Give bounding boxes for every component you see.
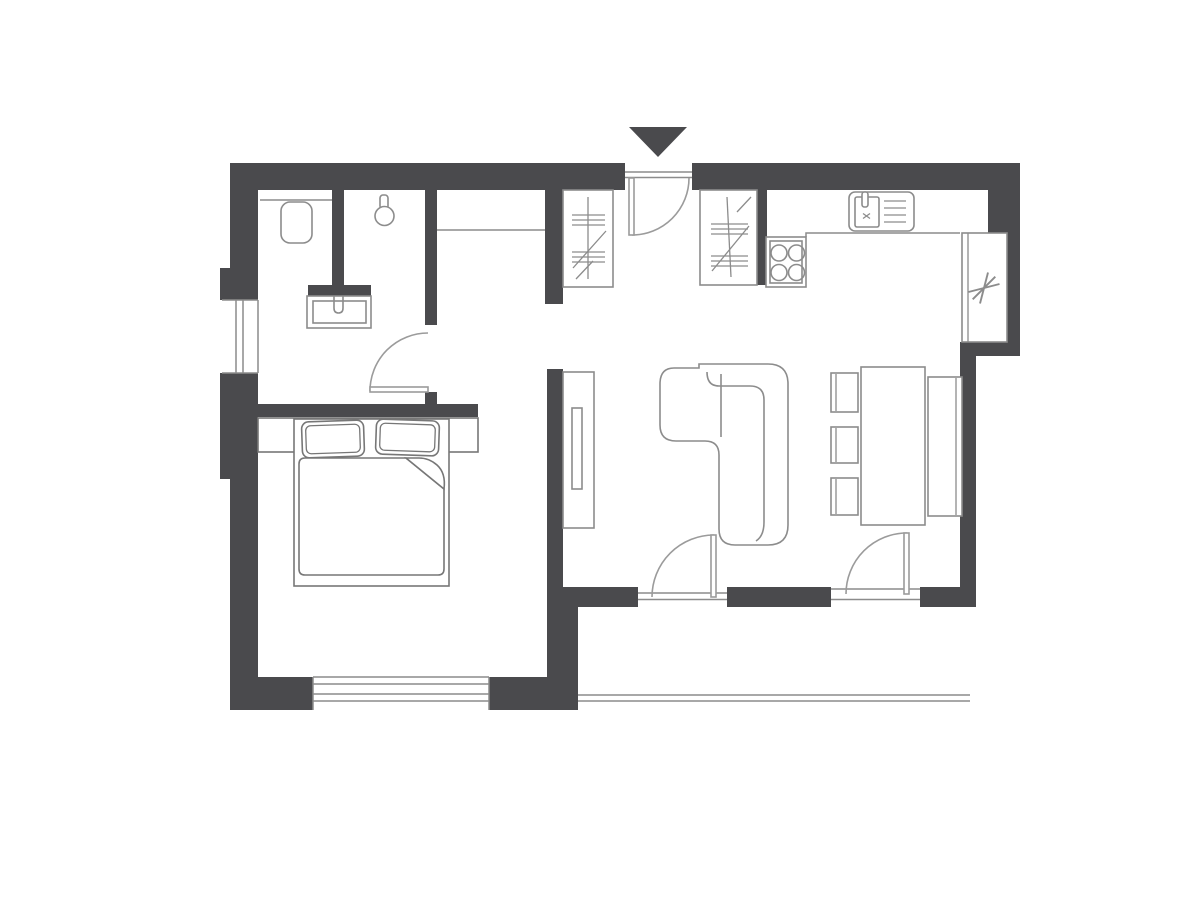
chair	[831, 478, 858, 515]
wall-west-pilaster-upper	[220, 268, 258, 300]
wall-hall-living-lower	[547, 369, 563, 607]
wall-bathroom-partition	[332, 188, 344, 285]
wall-south-bedroom-left	[230, 677, 313, 710]
wall-top-right	[692, 163, 1020, 190]
bathroom-west-window	[222, 300, 258, 373]
entrance-threshold	[625, 172, 692, 178]
balcony-door-right-leaf	[904, 533, 909, 594]
sink-faucet	[862, 192, 868, 207]
dining-table	[861, 367, 925, 525]
pillow	[375, 419, 439, 456]
corner-sofa	[660, 364, 788, 545]
balcony-door-left-swing-arc	[652, 535, 714, 597]
floor-plan	[0, 0, 1200, 900]
wall-top-left	[230, 163, 625, 190]
bedroom-furniture	[258, 418, 478, 586]
floor-plan-canvas	[0, 0, 1200, 900]
bench	[928, 377, 962, 516]
entrance-door-swing-arc	[632, 178, 689, 235]
pillow	[301, 420, 364, 458]
wall-south-living-right	[920, 587, 976, 607]
living-furniture	[563, 364, 962, 545]
kitchen-sink-unit	[849, 192, 914, 231]
wall-hall-closet-upper	[545, 185, 563, 304]
toilet	[281, 202, 312, 243]
entrance-door-leaf	[629, 178, 634, 235]
tv	[572, 408, 582, 489]
doors	[370, 178, 909, 597]
wall-bathroom-east-stub	[425, 392, 437, 405]
entrance-marker-icon	[629, 127, 687, 157]
wall-bathroom-east	[425, 188, 437, 325]
bathroom-door-swing-arc	[370, 333, 428, 391]
window-glazing-line	[313, 684, 489, 701]
balcony-door-right-swing-arc	[846, 533, 907, 594]
terrace-edge-line	[578, 695, 970, 701]
duvet	[299, 458, 444, 575]
bedroom-south-window	[313, 677, 489, 710]
wall-bedroom-north	[258, 404, 478, 417]
wall-west-pilaster-lower	[220, 373, 258, 479]
balcony-door-left-leaf	[711, 535, 716, 597]
chair	[831, 373, 858, 412]
chair	[831, 427, 858, 463]
shower-head	[375, 207, 394, 226]
kitchen-counter-edge	[806, 233, 960, 237]
wall-south-living-mid	[727, 587, 831, 607]
window-glazing-line	[236, 300, 243, 373]
wall-east-bedroom	[547, 600, 578, 710]
wall-south-living-left	[547, 587, 638, 607]
window-frame-line	[222, 300, 258, 373]
bathroom-door-leaf	[370, 387, 428, 392]
wall-vanity-counter	[308, 285, 371, 296]
